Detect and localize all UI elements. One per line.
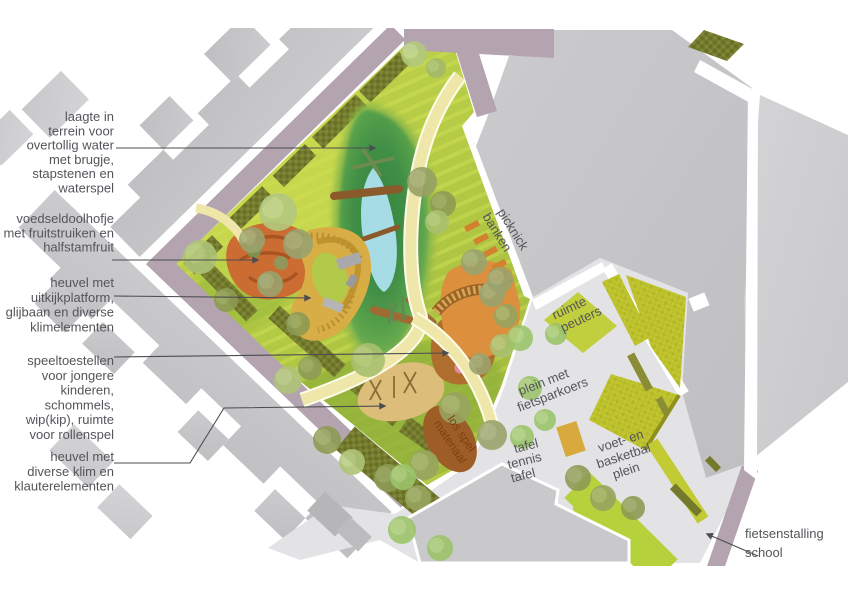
svg-text:uitkijkplatform,: uitkijkplatform, xyxy=(31,290,114,305)
svg-text:fietsenstalling: fietsenstalling xyxy=(745,526,824,541)
svg-text:glijbaan en diverse: glijbaan en diverse xyxy=(6,305,114,320)
svg-text:terrein voor: terrein voor xyxy=(48,123,114,138)
svg-text:kinderen,: kinderen, xyxy=(61,383,114,398)
svg-text:heuvel met: heuvel met xyxy=(50,449,114,464)
svg-text:voedseldoolhofje: voedseldoolhofje xyxy=(16,211,114,226)
svg-text:voor rollenspel: voor rollenspel xyxy=(29,427,114,442)
svg-text:wip(kip), ruimte: wip(kip), ruimte xyxy=(25,412,114,427)
svg-text:school: school xyxy=(745,545,783,560)
svg-text:stapstenen en: stapstenen en xyxy=(32,166,114,181)
svg-text:overtollig water: overtollig water xyxy=(27,138,115,153)
svg-text:halfstamfruit: halfstamfruit xyxy=(43,240,114,255)
svg-text:heuvel met: heuvel met xyxy=(50,275,114,290)
svg-text:met brugje,: met brugje, xyxy=(49,152,114,167)
svg-text:waterspel: waterspel xyxy=(57,181,114,196)
svg-text:schommels,: schommels, xyxy=(45,397,114,412)
svg-text:met fruitstruiken en: met fruitstruiken en xyxy=(3,225,114,240)
svg-text:voor jongere: voor jongere xyxy=(42,368,114,383)
svg-text:diverse klim en: diverse klim en xyxy=(27,464,114,479)
svg-text:speeltoestellen: speeltoestellen xyxy=(27,353,114,368)
svg-text:klimelementen: klimelementen xyxy=(30,319,114,334)
svg-text:laagte in: laagte in xyxy=(65,109,114,124)
svg-text:klauterelementen: klauterelementen xyxy=(14,479,114,494)
